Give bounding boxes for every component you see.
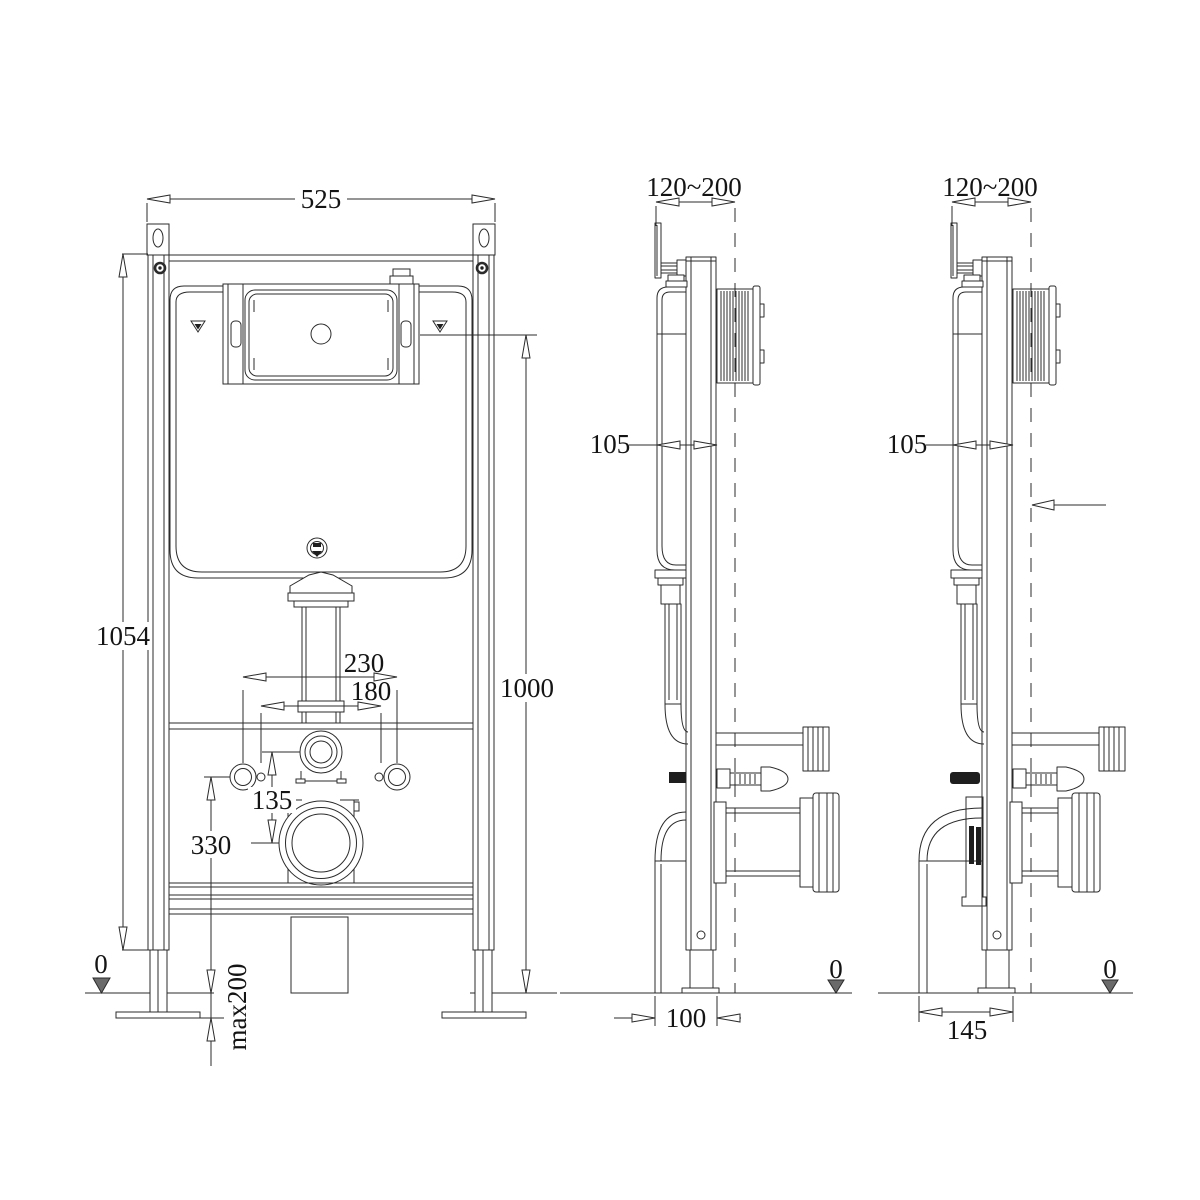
dim-right-depth: 105 <box>887 429 928 459</box>
dim-front-height: 1054 <box>96 621 151 651</box>
dim-front-leg-adjust: max200 <box>222 964 252 1051</box>
flush-plate-panel <box>223 284 419 384</box>
right-datum-triangle <box>1102 980 1118 993</box>
side-view-middle: 120~200 105 100 0 <box>560 172 852 1033</box>
wall-leader-arrow <box>1032 500 1106 510</box>
dim-middle-depth: 105 <box>590 429 631 459</box>
side-view-right: 120~200 105 145 0 <box>878 172 1133 1045</box>
drain-outlet-box <box>291 917 348 993</box>
dim-right-wall-range: 120~200 <box>942 172 1038 202</box>
top-wall-brackets <box>147 224 495 273</box>
inlet-stub <box>393 269 410 276</box>
front-floor-datum: 0 <box>94 949 108 979</box>
dim-middle-base-depth: 100 <box>666 1003 707 1033</box>
dim-middle-wall-range: 120~200 <box>646 172 742 202</box>
dim-front-spacing-outer: 230 <box>344 648 385 678</box>
pan-outlet-connector <box>714 793 839 892</box>
cross-rails-lower <box>169 883 473 914</box>
pan-outlet-connector <box>1010 793 1100 892</box>
dim-right-base-depth: 145 <box>947 1015 988 1045</box>
middle-datum-triangle <box>828 980 844 993</box>
cross-rail-upper <box>169 723 473 729</box>
dim-front-spacing-inner: 180 <box>351 676 392 706</box>
dim-front-drain-height: 330 <box>191 830 232 860</box>
dim-front-width: 525 <box>301 184 342 214</box>
dim-front-supply-drain: 135 <box>252 785 293 815</box>
drain-downpipe <box>655 812 686 993</box>
front-view: 525 1054 1000 230 180 <box>85 184 557 1066</box>
technical-drawing-canvas: 525 1054 1000 230 180 <box>0 0 1200 1200</box>
front-datum-triangle <box>93 978 110 993</box>
supply-connection <box>296 731 346 783</box>
fixing-tab <box>669 772 686 783</box>
dim-front-plate-height: 1000 <box>500 673 554 703</box>
fixing-tab <box>950 772 980 784</box>
